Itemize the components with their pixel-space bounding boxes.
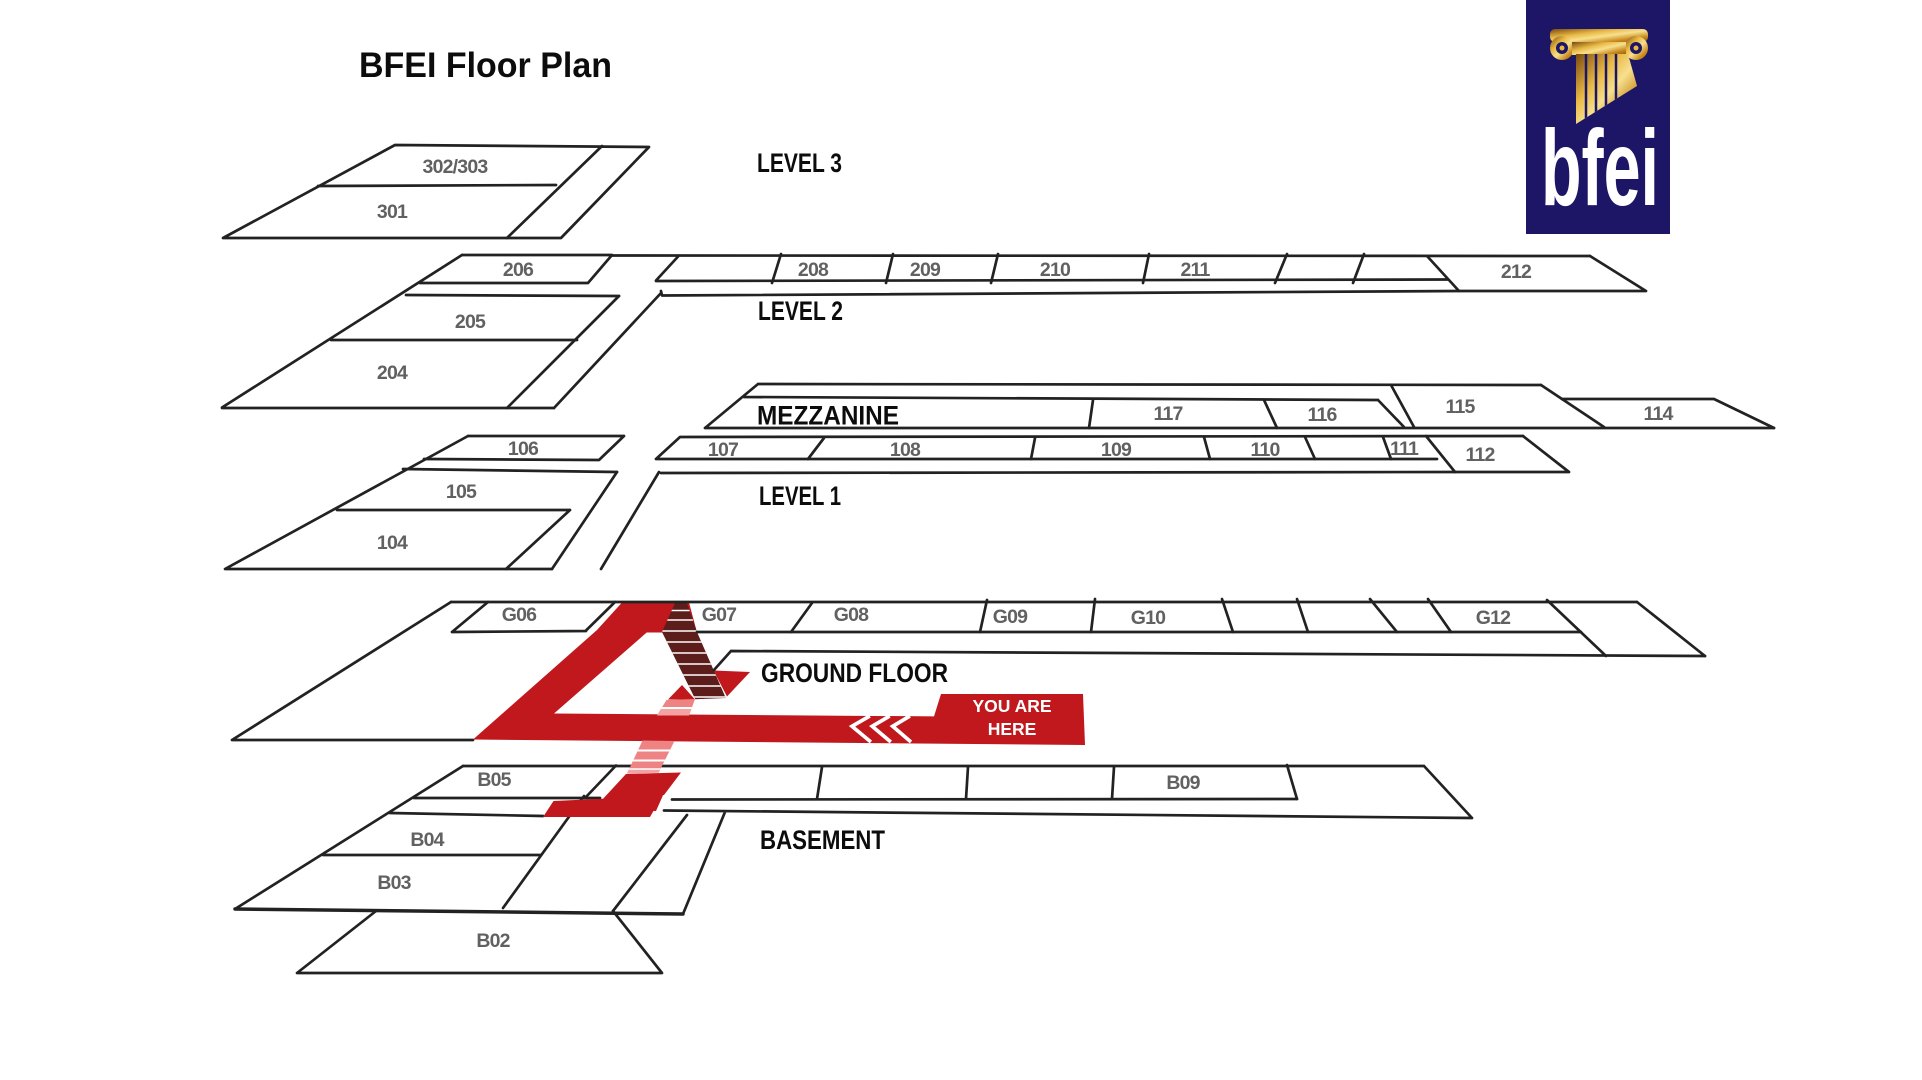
svg-text:208: 208 [798,259,829,281]
svg-text:104: 104 [377,532,408,554]
svg-text:BASEMENT: BASEMENT [760,825,885,855]
svg-text:G08: G08 [834,604,869,626]
svg-text:B05: B05 [477,769,511,791]
svg-text:B02: B02 [476,930,510,952]
svg-text:G10: G10 [1131,607,1166,629]
svg-text:YOU ARE: YOU ARE [972,696,1051,716]
svg-text:211: 211 [1180,259,1210,281]
svg-text:BFEI Floor Plan: BFEI Floor Plan [359,46,612,85]
svg-text:205: 205 [455,311,486,333]
svg-text:110: 110 [1250,439,1280,461]
svg-text:301: 301 [377,201,408,223]
svg-text:G09: G09 [993,606,1028,628]
svg-text:115: 115 [1445,396,1475,418]
svg-text:B09: B09 [1166,772,1200,794]
svg-text:LEVEL 2: LEVEL 2 [758,296,843,326]
svg-text:B04: B04 [410,829,444,851]
svg-text:302/303: 302/303 [423,156,489,178]
svg-text:209: 209 [910,259,941,281]
svg-text:MEZZANINE: MEZZANINE [757,401,899,431]
svg-text:105: 105 [446,481,477,503]
svg-text:106: 106 [508,438,539,460]
svg-text:GROUND FLOOR: GROUND FLOOR [761,658,948,688]
svg-text:LEVEL 3: LEVEL 3 [757,148,842,178]
svg-text:116: 116 [1307,404,1337,426]
svg-text:212: 212 [1501,261,1532,283]
svg-text:G07: G07 [702,604,736,626]
svg-text:LEVEL 1: LEVEL 1 [759,481,841,511]
svg-text:bfei: bfei [1541,107,1659,228]
svg-text:108: 108 [890,439,921,461]
svg-text:G12: G12 [1476,607,1511,629]
svg-text:210: 210 [1040,259,1071,281]
svg-text:206: 206 [503,259,534,281]
svg-text:111: 111 [1390,438,1419,460]
svg-text:117: 117 [1153,403,1182,425]
svg-text:204: 204 [377,362,408,384]
svg-text:107: 107 [708,439,738,461]
svg-text:112: 112 [1465,444,1495,466]
svg-text:HERE: HERE [988,719,1037,739]
svg-text:109: 109 [1101,439,1132,461]
svg-text:G06: G06 [502,604,537,626]
svg-text:B03: B03 [377,872,411,894]
svg-text:114: 114 [1643,403,1673,425]
